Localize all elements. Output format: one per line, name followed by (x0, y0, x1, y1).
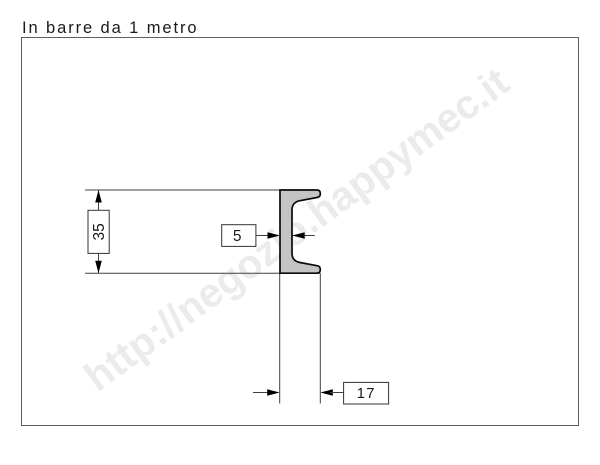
svg-text:17: 17 (357, 386, 376, 402)
svg-text:In barre da 1 metro: In barre da 1 metro (22, 19, 198, 37)
svg-text:http://negozio.happymec.it: http://negozio.happymec.it (76, 58, 518, 400)
svg-text:35: 35 (91, 223, 108, 240)
svg-text:5: 5 (233, 228, 242, 245)
